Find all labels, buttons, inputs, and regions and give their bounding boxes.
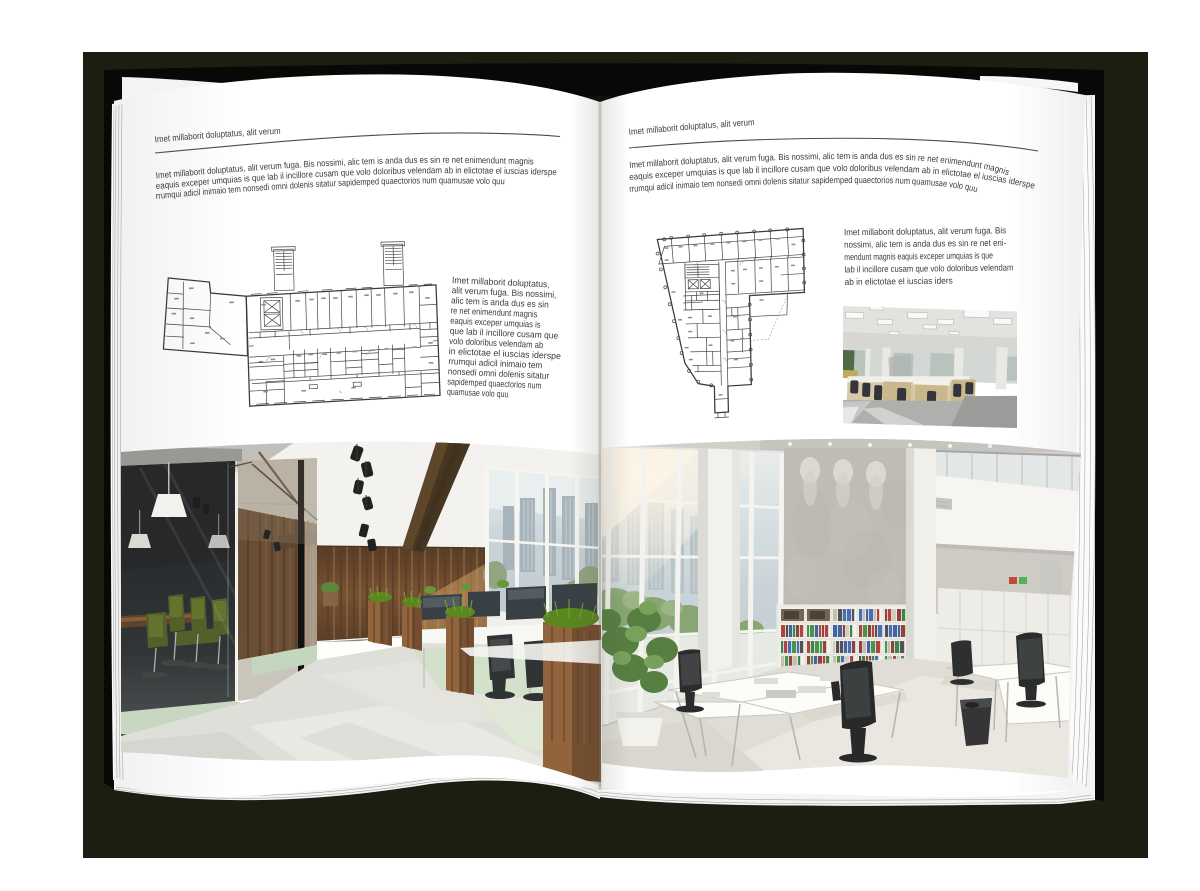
svg-text:nossimi, alic tem is anda dus: nossimi, alic tem is anda dus es sin re …: [844, 238, 1006, 250]
svg-text:lab il incillore cusam que vol: lab il incillore cusam que volo doloribu…: [844, 262, 1013, 274]
svg-text:mendunt magnis eaquis exceper: mendunt magnis eaquis exceper umquias is…: [844, 250, 993, 262]
svg-text:Imet millaborit doluptatus, al: Imet millaborit doluptatus, alit verum f…: [844, 225, 1007, 237]
svg-text:2-: 2-: [339, 390, 342, 394]
svg-text:ab in elictotae el iuscias ide: ab in elictotae el iuscias iders: [845, 276, 954, 287]
